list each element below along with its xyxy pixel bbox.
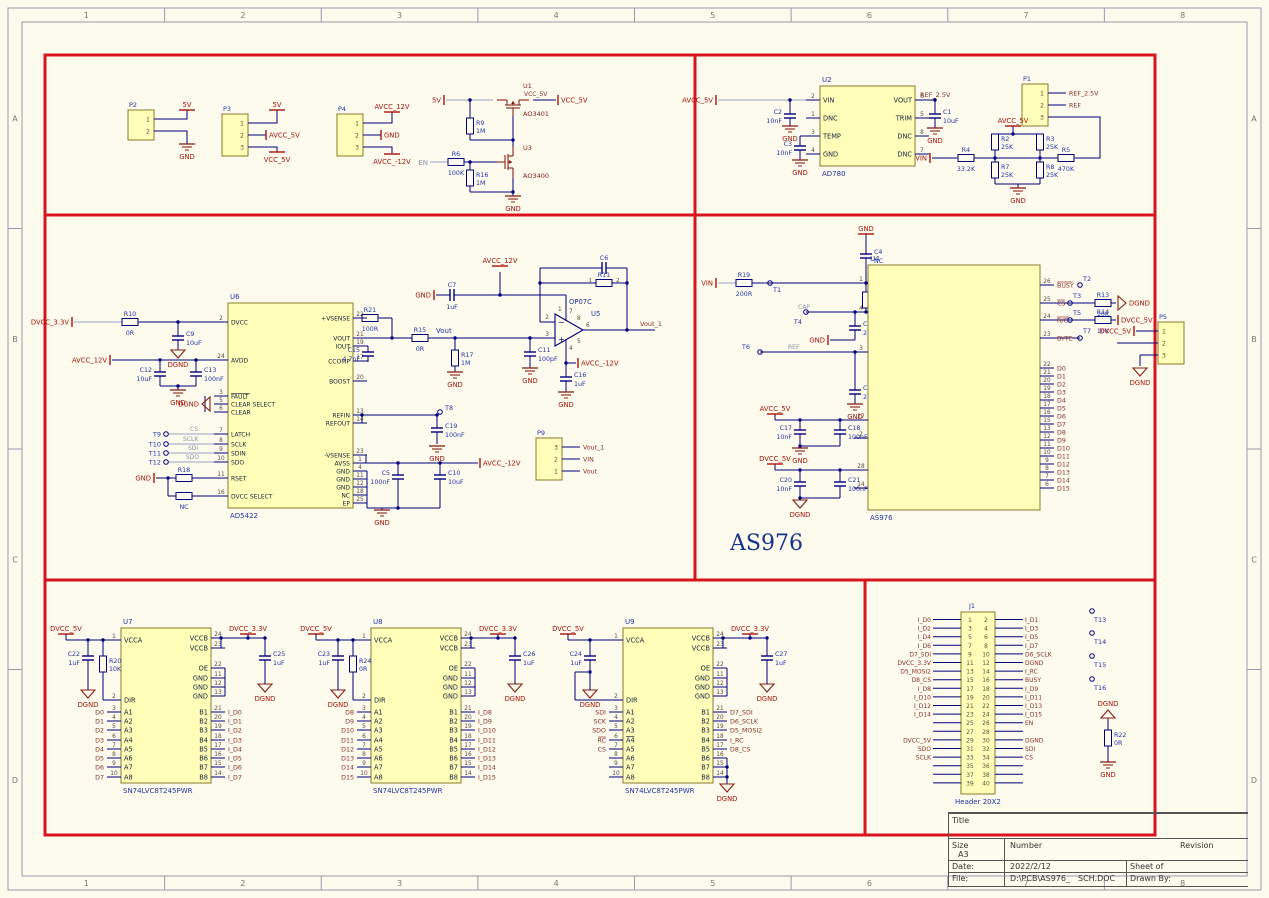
pwr-5V[interactable]: 5V — [432, 95, 444, 105]
net-label[interactable]: I_D6 — [228, 764, 242, 771]
net-EN[interactable]: EN — [418, 159, 428, 167]
net-label[interactable]: DVCC_3.3V — [897, 660, 932, 667]
testpoint-label[interactable]: T14 — [1093, 638, 1106, 646]
dgnd-label[interactable]: DGND — [328, 701, 349, 709]
gnd-label[interactable]: GND — [1100, 771, 1116, 779]
power-port-label[interactable]: AVCC_5V — [998, 117, 1029, 125]
dgnd-label[interactable]: DGND — [1098, 700, 1119, 708]
net-label[interactable]: D14 — [1057, 477, 1070, 484]
net-label[interactable]: D8 — [345, 709, 354, 716]
net-label[interactable]: D3 — [95, 737, 104, 744]
res-designator[interactable]: R19 — [738, 272, 750, 279]
net-label[interactable]: EN — [1025, 720, 1033, 727]
mosfet-designator[interactable]: U1 — [523, 82, 532, 90]
gnd-GND[interactable]: GND — [927, 128, 943, 145]
power-port-label[interactable]: 5V — [183, 101, 192, 109]
res-designator[interactable]: R9 — [476, 120, 484, 127]
cap-C19[interactable]: C19100nF — [431, 422, 465, 439]
pwr-VIN[interactable]: VIN — [701, 278, 716, 288]
res-R11[interactable]: R1112 — [589, 272, 620, 287]
power-port-label[interactable]: VIN — [915, 155, 927, 163]
net-label[interactable]: I_D5 — [1025, 634, 1038, 641]
gnd-label[interactable]: GND — [558, 401, 574, 409]
net-label[interactable]: REF_2.5V — [1069, 90, 1099, 97]
pwr-AVCC_12V[interactable]: AVCC_12V — [482, 257, 517, 266]
res-designator[interactable]: R17 — [461, 352, 473, 359]
cap-C16[interactable]: C161uF — [560, 371, 586, 388]
dgnd-label[interactable]: DGND — [580, 701, 601, 709]
net-label[interactable]: SDI — [188, 445, 198, 452]
mosfet-U3[interactable]: U3AO3400 — [497, 144, 549, 180]
res-designator[interactable]: R15 — [414, 327, 426, 334]
res-value[interactable]: 1M — [476, 128, 485, 135]
gnd-label[interactable]: GND — [505, 205, 521, 213]
res-designator[interactable]: R13 — [1097, 292, 1109, 299]
testpoint-label[interactable]: T7 — [1082, 327, 1091, 335]
cap-value[interactable]: 10nF — [776, 150, 792, 157]
res-R19[interactable]: R19200R — [736, 272, 753, 298]
big-label[interactable]: AS976 — [729, 531, 803, 556]
net-label[interactable]: D1 — [95, 718, 104, 725]
connector-designator[interactable]: P5 — [1159, 313, 1167, 321]
net-label[interactable]: D15 — [1057, 485, 1070, 492]
testpoint-label[interactable]: T4 — [793, 318, 802, 326]
cap-designator[interactable]: C7 — [448, 282, 456, 289]
net-label[interactable]: D10 — [341, 727, 354, 734]
cap-value[interactable]: 1uF — [523, 660, 535, 667]
cap-C17[interactable]: C1710nF — [776, 424, 806, 441]
testpoint-label[interactable]: T13 — [1093, 616, 1106, 624]
net-label[interactable]: Vout — [583, 468, 598, 475]
testpoint-label[interactable]: T2 — [1082, 275, 1091, 283]
cap-value[interactable]: 1uF — [318, 660, 330, 667]
net-SDI[interactable]: SDI — [188, 445, 198, 452]
res-designator[interactable]: R21 — [364, 307, 376, 314]
dgnd-label[interactable]: DGND — [255, 695, 276, 703]
res-designator[interactable]: R7 — [1001, 164, 1009, 171]
net-label[interactable]: I_D15 — [1025, 712, 1042, 719]
cap-designator[interactable]: C12 — [140, 367, 152, 374]
net-label[interactable]: D15 — [341, 774, 354, 781]
net-label[interactable]: I_D12 — [478, 746, 496, 753]
dgnd-label[interactable]: DGND — [790, 511, 811, 519]
net-label[interactable]: I_D5 — [228, 755, 242, 762]
conn-P2[interactable]: P212 — [128, 101, 172, 140]
net-label[interactable]: CS — [190, 426, 198, 433]
net-label[interactable]: I_D4 — [918, 634, 931, 641]
net-label[interactable]: I_D7 — [228, 774, 242, 781]
power-port-label[interactable]: DVCC_5V — [300, 625, 332, 633]
net-label[interactable]: I_D13 — [478, 755, 496, 762]
net-label[interactable]: I_D0 — [918, 617, 931, 624]
net-label[interactable]: VCC_5V — [524, 91, 548, 98]
chip-designator[interactable]: U8 — [373, 618, 383, 626]
net-label[interactable]: I_D8 — [918, 686, 931, 693]
net-label[interactable]: I_D2 — [918, 626, 931, 633]
net-label[interactable]: D7_SDI — [730, 709, 753, 716]
res-value[interactable]: 0R — [1114, 740, 1123, 747]
pwr-AVCC_5V[interactable]: AVCC_5V — [998, 117, 1029, 126]
net-label[interactable]: D11 — [341, 737, 354, 744]
res-R17[interactable]: R171M — [452, 350, 474, 367]
power-port-label[interactable]: 5V — [273, 101, 282, 109]
pwr-AVCC_5V[interactable]: AVCC_5V — [682, 95, 716, 105]
chip-U4[interactable]: U4AS976143272281426BUSY25CS24R/C23BYTE22… — [854, 255, 1074, 522]
power-port-label[interactable]: GND — [415, 292, 431, 300]
cap-value[interactable]: 10uF — [186, 340, 202, 347]
res-R6[interactable]: R6100K — [448, 151, 465, 177]
cap-C7[interactable]: C71uF — [444, 282, 460, 311]
res-value[interactable]: 10K — [109, 666, 122, 673]
net-label[interactable]: I_D13 — [1025, 703, 1042, 710]
net-label[interactable]: D5_MOSI2 — [730, 727, 762, 734]
connector-designator[interactable]: P4 — [338, 105, 346, 113]
res-value[interactable]: 33.2K — [957, 166, 976, 173]
net-label[interactable]: D9 — [345, 718, 354, 725]
net-VCC_5V[interactable]: VCC_5V — [524, 91, 548, 98]
cap-C20[interactable]: C2010nF — [776, 476, 806, 493]
net-CS[interactable]: CS — [190, 426, 198, 433]
tp-T13[interactable]: T13 — [1090, 609, 1107, 624]
dgnd-label[interactable]: DGND — [505, 695, 526, 703]
res-R7[interactable]: R725K — [992, 162, 1015, 179]
cap-value[interactable]: 1uF — [570, 660, 582, 667]
cap-C2[interactable]: C210nF — [766, 108, 796, 125]
conn-P9[interactable]: P93Vout_12VIN1Vout — [536, 429, 604, 480]
res-designator[interactable]: R10 — [124, 311, 136, 318]
net-label[interactable]: I_D3 — [228, 737, 242, 744]
pwr-DVCC_3.3V[interactable]: DVCC_3.3V — [31, 317, 72, 327]
pwr-5V[interactable]: 5V — [269, 101, 285, 110]
net-label[interactable]: CS — [598, 746, 606, 753]
net-label[interactable]: Vout — [436, 327, 452, 335]
gnd-GND[interactable]: GND — [558, 392, 574, 409]
dgnd-label[interactable]: DGND — [168, 361, 189, 369]
cap-designator[interactable]: C10 — [448, 470, 460, 477]
cap-designator[interactable]: C22 — [68, 651, 80, 658]
power-port-label[interactable]: GND — [384, 132, 400, 140]
dgnd-label[interactable]: DGND — [178, 401, 199, 409]
net-label[interactable]: I_D1 — [228, 718, 242, 725]
net-label[interactable]: RC — [598, 737, 607, 744]
net-label[interactable]: D3 — [1057, 389, 1066, 396]
gnd-label[interactable]: GND — [927, 137, 943, 145]
net-label[interactable]: SDI — [1025, 746, 1035, 753]
net-label[interactable]: I_D14 — [914, 712, 931, 719]
res-value[interactable]: 1M — [476, 180, 485, 187]
power-port-label[interactable]: DVCC_5V — [1121, 317, 1153, 325]
net-label[interactable]: I_D2 — [228, 727, 242, 734]
tp-T8[interactable]: T8 — [438, 404, 453, 414]
pwr-GND[interactable]: GND — [135, 473, 154, 483]
res-designator[interactable]: R20 — [109, 658, 121, 665]
cap-designator[interactable]: C18 — [848, 425, 860, 432]
power-port-label[interactable]: AVCC_12V — [374, 103, 409, 111]
net-label[interactable]: I_D8 — [478, 709, 492, 716]
power-port-label[interactable]: VCC_5V — [561, 97, 588, 105]
net-label[interactable]: I_D9 — [478, 718, 492, 725]
chip-name[interactable]: AS976 — [870, 514, 893, 522]
testpoint-label[interactable]: T16 — [1093, 684, 1106, 692]
testpoint-label[interactable]: T5 — [1072, 309, 1081, 317]
pwr-GND[interactable]: GND — [415, 290, 434, 300]
res-value[interactable]: 470K — [1058, 166, 1075, 173]
power-port-label[interactable]: DVCC_5V — [1099, 328, 1131, 336]
power-port-label[interactable]: DVCC_3.3V — [31, 319, 69, 327]
res-R3[interactable]: R325K — [1037, 134, 1060, 151]
chip-designator[interactable]: U4 — [870, 255, 880, 263]
res-value[interactable]: 1M — [461, 360, 470, 367]
net-label[interactable]: D12 — [1057, 461, 1070, 468]
res-R21[interactable]: R21100R — [362, 307, 379, 333]
net-label[interactable]: D0 — [95, 709, 104, 716]
buf-U9[interactable]: U9SN74LVC8T245PWR1VCCA2DIR3A1SDI4A2SCK5A… — [552, 618, 787, 803]
gnd-label[interactable]: GND — [792, 169, 808, 177]
cap-C5[interactable]: C5100nF — [370, 469, 404, 486]
header-J1[interactable]: J1Header 20X212I_D0I_D134I_D2I_D356I_D4I… — [897, 602, 1052, 806]
net-label[interactable]: I_D1 — [1025, 617, 1038, 624]
cap-designator[interactable]: C19 — [445, 423, 457, 430]
net-label[interactable]: SDO — [592, 727, 606, 734]
chip-designator[interactable]: U9 — [625, 618, 635, 626]
res-R8[interactable]: R825K — [1037, 162, 1060, 179]
cap-value[interactable]: 10nF — [776, 434, 792, 441]
cap-designator[interactable]: C25 — [273, 651, 285, 658]
power-port-label[interactable]: DVCC_5V — [552, 625, 584, 633]
net-label[interactable]: D1 — [1057, 373, 1066, 380]
net-SDO[interactable]: SDO — [186, 454, 199, 461]
testpoint-label[interactable]: T9 — [152, 431, 161, 439]
mosfet-value[interactable]: AO3400 — [523, 172, 549, 180]
pwr-AVCC_5V[interactable]: AVCC_5V — [760, 405, 791, 414]
res-value[interactable]: 25K — [1001, 172, 1014, 179]
chip-designator[interactable]: U2 — [822, 76, 832, 84]
res-value[interactable]: 25K — [1046, 172, 1059, 179]
cap-value[interactable]: 10nF — [766, 118, 782, 125]
res-designator[interactable]: R8 — [1046, 164, 1054, 171]
res-R15[interactable]: R150R — [412, 327, 428, 353]
lbl-AS976[interactable]: AS976 — [729, 531, 803, 556]
net-label[interactable]: I_D10 — [478, 727, 496, 734]
tp-T10[interactable]: T10 — [148, 441, 169, 449]
cap-designator[interactable]: C16 — [574, 372, 586, 379]
chip-name[interactable]: AD5422 — [230, 512, 258, 520]
res-designator[interactable]: R11 — [598, 272, 610, 279]
pwr-GND[interactable]: GND — [809, 335, 828, 345]
testpoint-label[interactable]: T15 — [1093, 661, 1106, 669]
net-label[interactable]: BUSY — [1025, 677, 1041, 684]
res-value[interactable]: NC — [179, 504, 189, 511]
net-label[interactable]: Vout_1 — [640, 320, 662, 328]
connector-designator[interactable]: J1 — [968, 602, 975, 610]
net-label[interactable]: SCLK — [916, 755, 932, 762]
net-label[interactable]: D0 — [1057, 365, 1066, 372]
res-R10[interactable]: R100R — [122, 311, 138, 337]
res-designator[interactable]: R3 — [1046, 136, 1054, 143]
res-value[interactable]: 0R — [416, 346, 425, 353]
power-port-label[interactable]: AVCC_-12V — [373, 158, 411, 166]
pwr-AVCC_12V[interactable]: AVCC_12V — [72, 355, 110, 365]
gnd-GND[interactable]: GND — [374, 510, 390, 527]
power-port-label[interactable]: DVCC_3.3V — [479, 625, 517, 633]
res-R22[interactable]: R220R — [1105, 730, 1127, 747]
pwr-GND[interactable]: GND — [381, 130, 400, 140]
net-label[interactable]: I_D6 — [918, 643, 931, 650]
net-label[interactable]: I_D4 — [228, 746, 242, 753]
gnd-GND[interactable]: GND — [179, 144, 195, 161]
cap-C13[interactable]: C13100nF — [190, 366, 224, 383]
connector-designator[interactable]: P1 — [1023, 75, 1031, 83]
net-label[interactable]: D5 — [95, 755, 104, 762]
net-label[interactable]: R/C — [1057, 317, 1068, 324]
net-label[interactable]: D10 — [1057, 445, 1070, 452]
power-port-label[interactable]: AVCC_12V — [482, 257, 517, 265]
net-label[interactable]: I_D7 — [1025, 643, 1038, 650]
connector-designator[interactable]: P9 — [537, 429, 545, 437]
chip-designator[interactable]: U7 — [123, 618, 133, 626]
net-label[interactable]: I_D11 — [1025, 694, 1042, 701]
cap-designator[interactable]: C23 — [318, 651, 330, 658]
net-label[interactable]: D12 — [341, 746, 354, 753]
res-designator[interactable]: R18 — [178, 467, 190, 474]
conn-P1[interactable]: P11REF_2.5V2REF3 — [1022, 75, 1099, 126]
power-port-label[interactable]: GND — [858, 225, 874, 233]
connector-designator[interactable]: P3 — [223, 105, 231, 113]
gnd-label[interactable]: GND — [179, 153, 195, 161]
power-port-label[interactable]: VIN — [701, 280, 713, 288]
cap-value[interactable]: 100pF — [538, 356, 558, 363]
gnd-label[interactable]: GND — [374, 519, 390, 527]
gnd-GND[interactable]: GND — [1100, 762, 1116, 779]
net-label[interactable]: I_D3 — [1025, 626, 1038, 633]
opamp-value[interactable]: OP07C — [569, 298, 592, 306]
res-designator[interactable]: R24 — [359, 658, 371, 665]
chip-name[interactable]: SN74LVC8T245PWR — [625, 787, 695, 795]
pwr-DVCC_5V[interactable]: DVCC_5V — [759, 455, 791, 464]
chip-name[interactable]: SN74LVC8T245PWR — [123, 787, 193, 795]
res-designator[interactable]: R16 — [476, 172, 488, 179]
gnd-label[interactable]: GND — [522, 377, 538, 385]
cap-value[interactable]: 1uF — [446, 304, 458, 311]
net-label[interactable]: CS — [1057, 300, 1065, 307]
res-value[interactable]: 100K — [448, 170, 465, 177]
net-label[interactable]: D7 — [95, 774, 104, 781]
net-label[interactable]: D9 — [1057, 437, 1066, 444]
gnd-label[interactable]: GND — [447, 381, 463, 389]
net-label[interactable]: I_D9 — [1025, 686, 1038, 693]
gnd-GND[interactable]: GND — [522, 368, 538, 385]
cap-designator[interactable]: C27 — [775, 651, 787, 658]
res-value[interactable]: 100R — [362, 326, 379, 333]
tp-T4[interactable]: T4 — [793, 310, 808, 326]
tp-T16[interactable]: T16 — [1090, 677, 1107, 692]
gnd-GND[interactable]: GND — [505, 196, 521, 213]
res-value[interactable]: 25K — [1046, 144, 1059, 151]
net-SCLK[interactable]: SCLK — [183, 436, 199, 443]
mosfet-value[interactable]: AO3401 — [523, 110, 549, 118]
opamp-U5[interactable]: −+23674851U5OP07C — [543, 298, 600, 354]
cap-designator[interactable]: C6 — [600, 255, 608, 262]
cap-C1[interactable]: C110uF — [929, 108, 959, 125]
cap-designator[interactable]: C2 — [774, 109, 782, 116]
net-label[interactable]: D5_MOSI2 — [900, 669, 931, 676]
dgnd-label[interactable]: DGND — [1129, 300, 1150, 308]
cap-value[interactable]: 10uF — [448, 479, 464, 486]
net-label[interactable]: DVCC_5V — [903, 737, 932, 744]
gnd-label[interactable]: GND — [792, 457, 808, 465]
testpoint-label[interactable]: T6 — [741, 343, 750, 351]
res-[interactable]: NC — [176, 493, 192, 512]
chip-designator[interactable]: U6 — [230, 293, 240, 301]
buf-U8[interactable]: U8SN74LVC8T245PWR1VCCA2DIR3A1D84A2D95A3D… — [300, 618, 535, 795]
net-label[interactable]: SCLK — [183, 436, 199, 443]
tp-T2[interactable]: T2 — [1078, 275, 1091, 287]
net-label[interactable]: DGND — [1025, 737, 1044, 744]
net-label[interactable]: D4 — [1057, 397, 1066, 404]
dgnd-label[interactable]: DGND — [757, 695, 778, 703]
net-label[interactable]: D6 — [95, 764, 104, 771]
power-port-label[interactable]: AVCC_5V — [760, 405, 791, 413]
opamp-designator[interactable]: U5 — [591, 310, 600, 318]
res-designator[interactable]: R2 — [1001, 136, 1009, 143]
tp-T14[interactable]: T14 — [1090, 631, 1107, 646]
power-port-label[interactable]: GND — [135, 475, 151, 483]
power-port-label[interactable]: DVCC_3.3V — [229, 625, 267, 633]
chip-name[interactable]: SN74LVC8T245PWR — [373, 787, 443, 795]
res-R18[interactable]: R18 — [176, 467, 192, 482]
net-label[interactable]: REF — [1069, 102, 1081, 109]
cap-value[interactable]: 100nF — [204, 376, 224, 383]
dgnd-DGND[interactable]: DGND — [1130, 368, 1151, 387]
net-label[interactable]: D8_CS — [912, 677, 932, 684]
net-label[interactable]: I_D10 — [914, 694, 931, 701]
net-label[interactable]: D7 — [1057, 421, 1066, 428]
tp-T6[interactable]: T6 — [741, 343, 762, 354]
net-label[interactable]: D5 — [1057, 405, 1066, 412]
net-label[interactable]: D2 — [1057, 381, 1066, 388]
cap-designator[interactable]: C26 — [523, 651, 535, 658]
conn-P3[interactable]: P3123 — [222, 105, 266, 156]
cap-designator[interactable]: C3 — [784, 141, 792, 148]
res-value[interactable]: 200R — [736, 291, 753, 298]
cap-designator[interactable]: C1 — [943, 109, 951, 116]
net-label[interactable]: D8_CS — [730, 746, 750, 753]
connector-name[interactable]: Header 20X2 — [955, 798, 1001, 806]
net-label[interactable]: SDI — [595, 709, 606, 716]
net-label[interactable]: SDO — [918, 746, 931, 753]
cap-value[interactable]: 10uF — [136, 376, 152, 383]
res-R5[interactable]: R5470K — [1058, 147, 1075, 173]
pwr-AVCC_12V[interactable]: AVCC_12V — [374, 103, 409, 112]
testpoint-label[interactable]: T3 — [1072, 292, 1081, 300]
cap-value[interactable]: 100nF — [370, 479, 390, 486]
net-label[interactable]: BUSY — [1057, 282, 1074, 289]
dgnd-DGND[interactable]: DGND — [790, 500, 811, 519]
net-label[interactable]: REF_2.5V — [920, 91, 951, 99]
res-value[interactable]: 25K — [1001, 144, 1014, 151]
cap-designator[interactable]: C5 — [382, 470, 390, 477]
dgnd-DGND[interactable]: DGND — [1118, 296, 1150, 310]
cap-designator[interactable]: C11 — [538, 347, 550, 354]
net-label[interactable]: I_D12 — [914, 703, 931, 710]
cap-designator[interactable]: C15 — [348, 347, 360, 354]
net-label[interactable]: D2 — [95, 727, 104, 734]
res-value[interactable]: 0R — [359, 666, 368, 673]
net-label[interactable]: DGND — [1025, 660, 1044, 667]
gnd-label[interactable]: GND — [429, 455, 445, 463]
power-port-label[interactable]: DVCC_3.3V — [731, 625, 769, 633]
power-port-label[interactable]: VCC_5V — [264, 156, 291, 164]
